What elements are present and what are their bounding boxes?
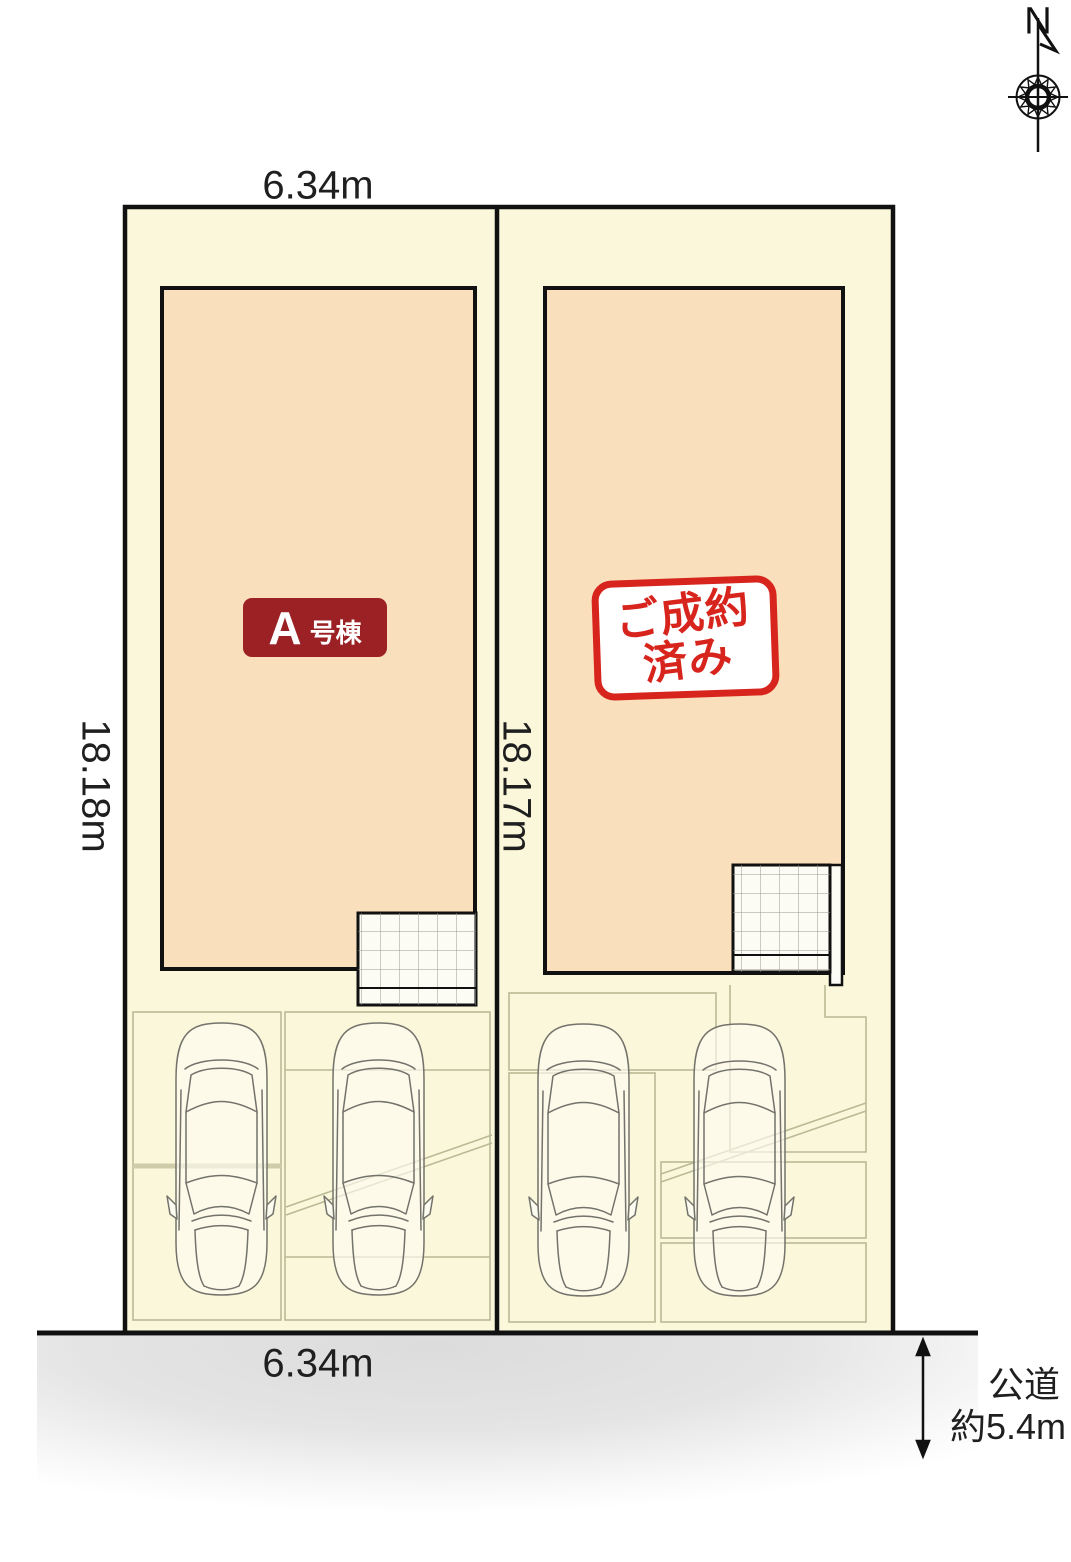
site-plan: 6.34m 6.34m 18.18m 18.17m N 公道 約5.4m A 号… [0, 0, 1071, 1562]
bottom-width-label: 6.34m [262, 1342, 373, 1387]
right-depth-label: 18.17m [494, 719, 539, 852]
entrance-porch-left [358, 913, 476, 1005]
left-depth-label: 18.18m [73, 719, 118, 852]
car-icon [324, 1023, 433, 1295]
car-icon [685, 1024, 794, 1296]
road-surface [37, 1336, 978, 1558]
car-icon [167, 1023, 276, 1295]
entrance-porch-right [733, 865, 842, 985]
road-width-label: 約5.4m [950, 1398, 1066, 1450]
unit-a-badge-letter: A [268, 605, 301, 651]
car-icon [529, 1024, 638, 1296]
top-width-label: 6.34m [262, 164, 373, 209]
north-label: N [1024, 1, 1051, 44]
sold-stamp: ご成約 済み [591, 575, 780, 701]
sold-stamp-text: ご成約 済み [613, 584, 758, 692]
unit-a-badge-suffix: 号棟 [310, 610, 362, 646]
unit-a-badge: A 号棟 [243, 598, 387, 657]
